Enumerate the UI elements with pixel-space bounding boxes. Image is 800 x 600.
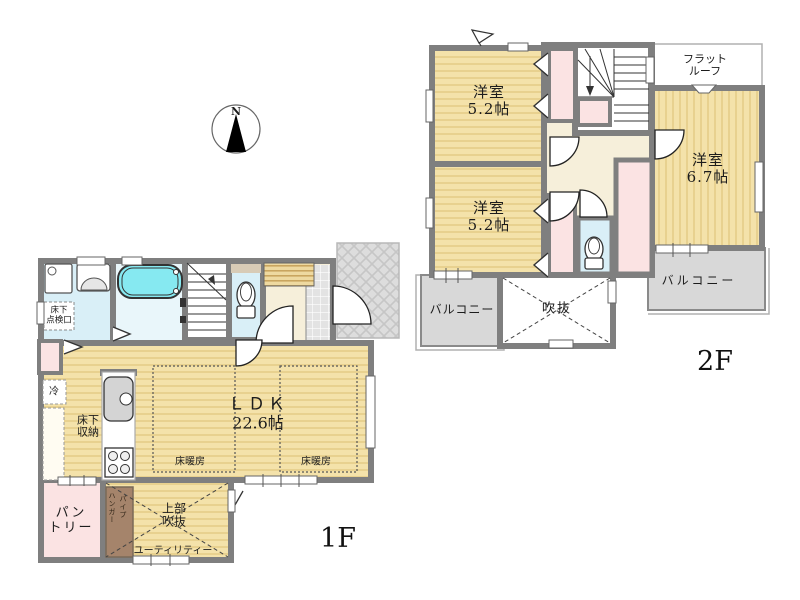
room-name: 洋室 [468, 200, 511, 217]
floor-label-2f: 2F [697, 347, 733, 377]
washing-machine-icon [45, 264, 72, 293]
room-name: 洋室 [468, 84, 511, 101]
bathtub-icon [118, 265, 182, 298]
pantry-line: パン [48, 506, 93, 521]
floor-label-1f: 1F [320, 524, 356, 554]
room-size: 5.2帖 [468, 101, 511, 118]
stove-icon [105, 448, 133, 477]
kitchen-sink-icon [104, 377, 133, 421]
vanity-sink-icon [77, 264, 110, 291]
label-balcony-left: バルコニー [430, 303, 495, 316]
hatch-line: 点検口 [46, 316, 72, 326]
shower-fixture [180, 298, 186, 307]
toilet-icon-2f [585, 237, 603, 269]
closet-under-stairs-2f [578, 99, 610, 125]
upper-void-line: 上部 [162, 503, 186, 516]
ldk-name: ＬＤＫ [228, 396, 288, 415]
label-utility: ユーティリティー [134, 545, 213, 556]
label-floor-heating-left: 床暖房 [175, 456, 205, 467]
pantry-line: トリー [48, 521, 93, 536]
room-name: 洋室 [687, 152, 730, 169]
label-underfloor-hatch: 床下 点検口 [46, 306, 72, 325]
closet-right-2f [616, 160, 652, 274]
storage-1f [39, 341, 61, 373]
label-hanger-pipe-col1: ハンガー [108, 492, 115, 556]
toilet-shelf [231, 264, 261, 273]
label-upper-void: 上部 吹抜 [162, 503, 186, 530]
label-floor-heating-right: 床暖房 [301, 456, 331, 467]
room-size: 5.2帖 [468, 217, 511, 234]
label-pantry: パン トリー [48, 506, 93, 535]
label-refrigerator: 冷 [49, 386, 59, 397]
label-underfloor-storage: 床下 収納 [77, 415, 99, 440]
cupboard-space [43, 408, 64, 480]
compass-north-label: N [231, 106, 241, 118]
floorplan-canvas: N 洋室 5.2帖 洋室 5.2帖 洋室 6.7帖 フラット ルーフ バルコニー… [0, 0, 800, 600]
flat-roof-line: ルーフ [683, 66, 727, 78]
label-ldk: ＬＤＫ 22.6帖 [228, 396, 288, 433]
flue-flag-mark [472, 30, 493, 46]
upper-void-line: 吹抜 [162, 516, 186, 529]
ldk-size: 22.6帖 [228, 415, 288, 433]
label-hanger-pipe-col2: パイプ [119, 495, 126, 555]
toilet-icon-1f [237, 282, 255, 318]
shower-fixture [180, 316, 186, 323]
label-bedroom-mid-2f: 洋室 5.2帖 [468, 200, 511, 234]
label-bedroom-right-2f: 洋室 6.7帖 [687, 152, 730, 186]
label-void-2f: 吹抜 [542, 303, 572, 318]
label-bedroom-top-2f: 洋室 5.2帖 [468, 84, 511, 118]
label-balcony-right: バルコニー [662, 274, 737, 287]
shoe-cabinet-icon [264, 263, 314, 286]
label-flat-roof: フラット ルーフ [683, 54, 727, 79]
room-size: 6.7帖 [687, 169, 730, 186]
stairwell-1f [185, 261, 229, 340]
closet-top-2f [549, 49, 575, 121]
storage-line: 収納 [77, 427, 99, 439]
